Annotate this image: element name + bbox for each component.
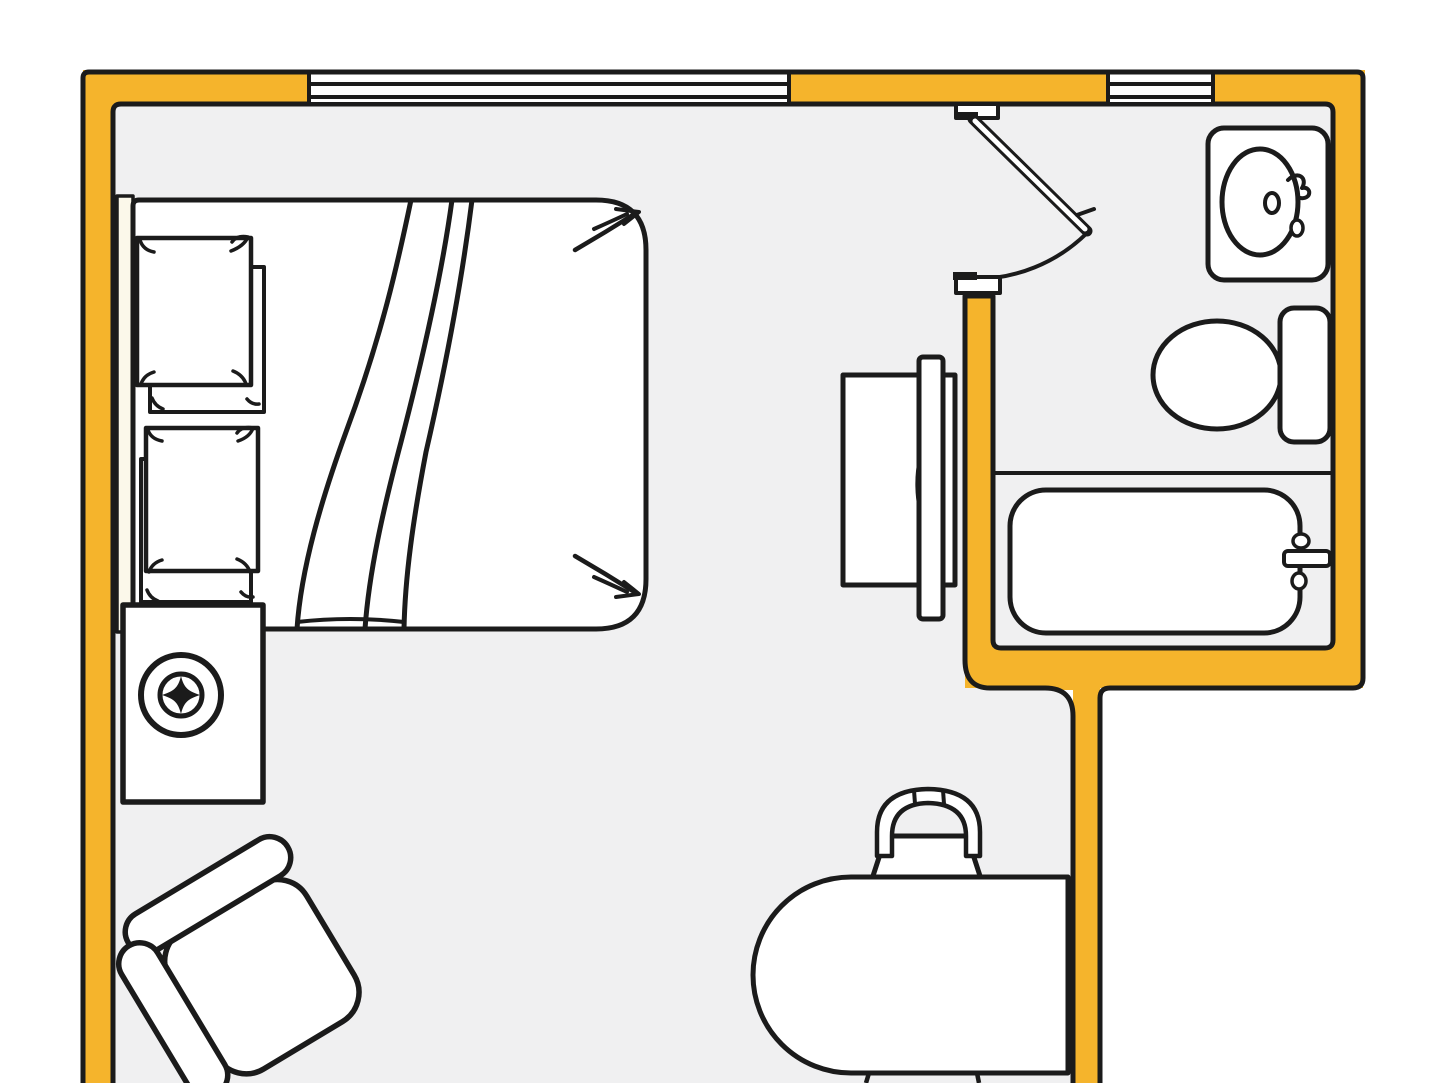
bathtub — [1010, 490, 1300, 633]
sink-faucet-knob — [1291, 220, 1303, 236]
wall-top-a — [83, 70, 309, 104]
door-strike-plate — [953, 272, 977, 280]
second-chair-leg-2 — [977, 1073, 979, 1083]
tub-faucet-knob-top — [1293, 534, 1309, 548]
desk-chair-back-spoke-2 — [943, 790, 944, 804]
wall-left — [83, 70, 113, 1083]
wall-junction — [965, 648, 1100, 690]
pillow-1 — [137, 238, 251, 385]
tub-faucet-knob-bottom — [1292, 573, 1306, 589]
desk-chair-back-spoke-1 — [914, 790, 915, 804]
second-chair-leg-1 — [866, 1073, 869, 1083]
tub-faucet-bar — [1284, 551, 1330, 566]
wall-corridor — [1073, 652, 1100, 1083]
wall-right — [1331, 70, 1363, 688]
toilet-bowl — [1153, 321, 1281, 429]
sink-basin — [1222, 149, 1298, 255]
wall-top-b — [789, 70, 1108, 104]
window-1-sash — [309, 84, 789, 97]
window-2-sash — [1108, 84, 1213, 97]
floor-plan-canvas — [0, 0, 1440, 1083]
toilet-tank — [1280, 308, 1330, 442]
wall-divider — [965, 292, 993, 652]
tv-screen-bar — [919, 357, 943, 619]
pillow-2 — [146, 428, 258, 571]
desk — [753, 877, 1068, 1073]
floor-plan-drawing — [0, 0, 1440, 1083]
sink-drain — [1265, 193, 1279, 213]
